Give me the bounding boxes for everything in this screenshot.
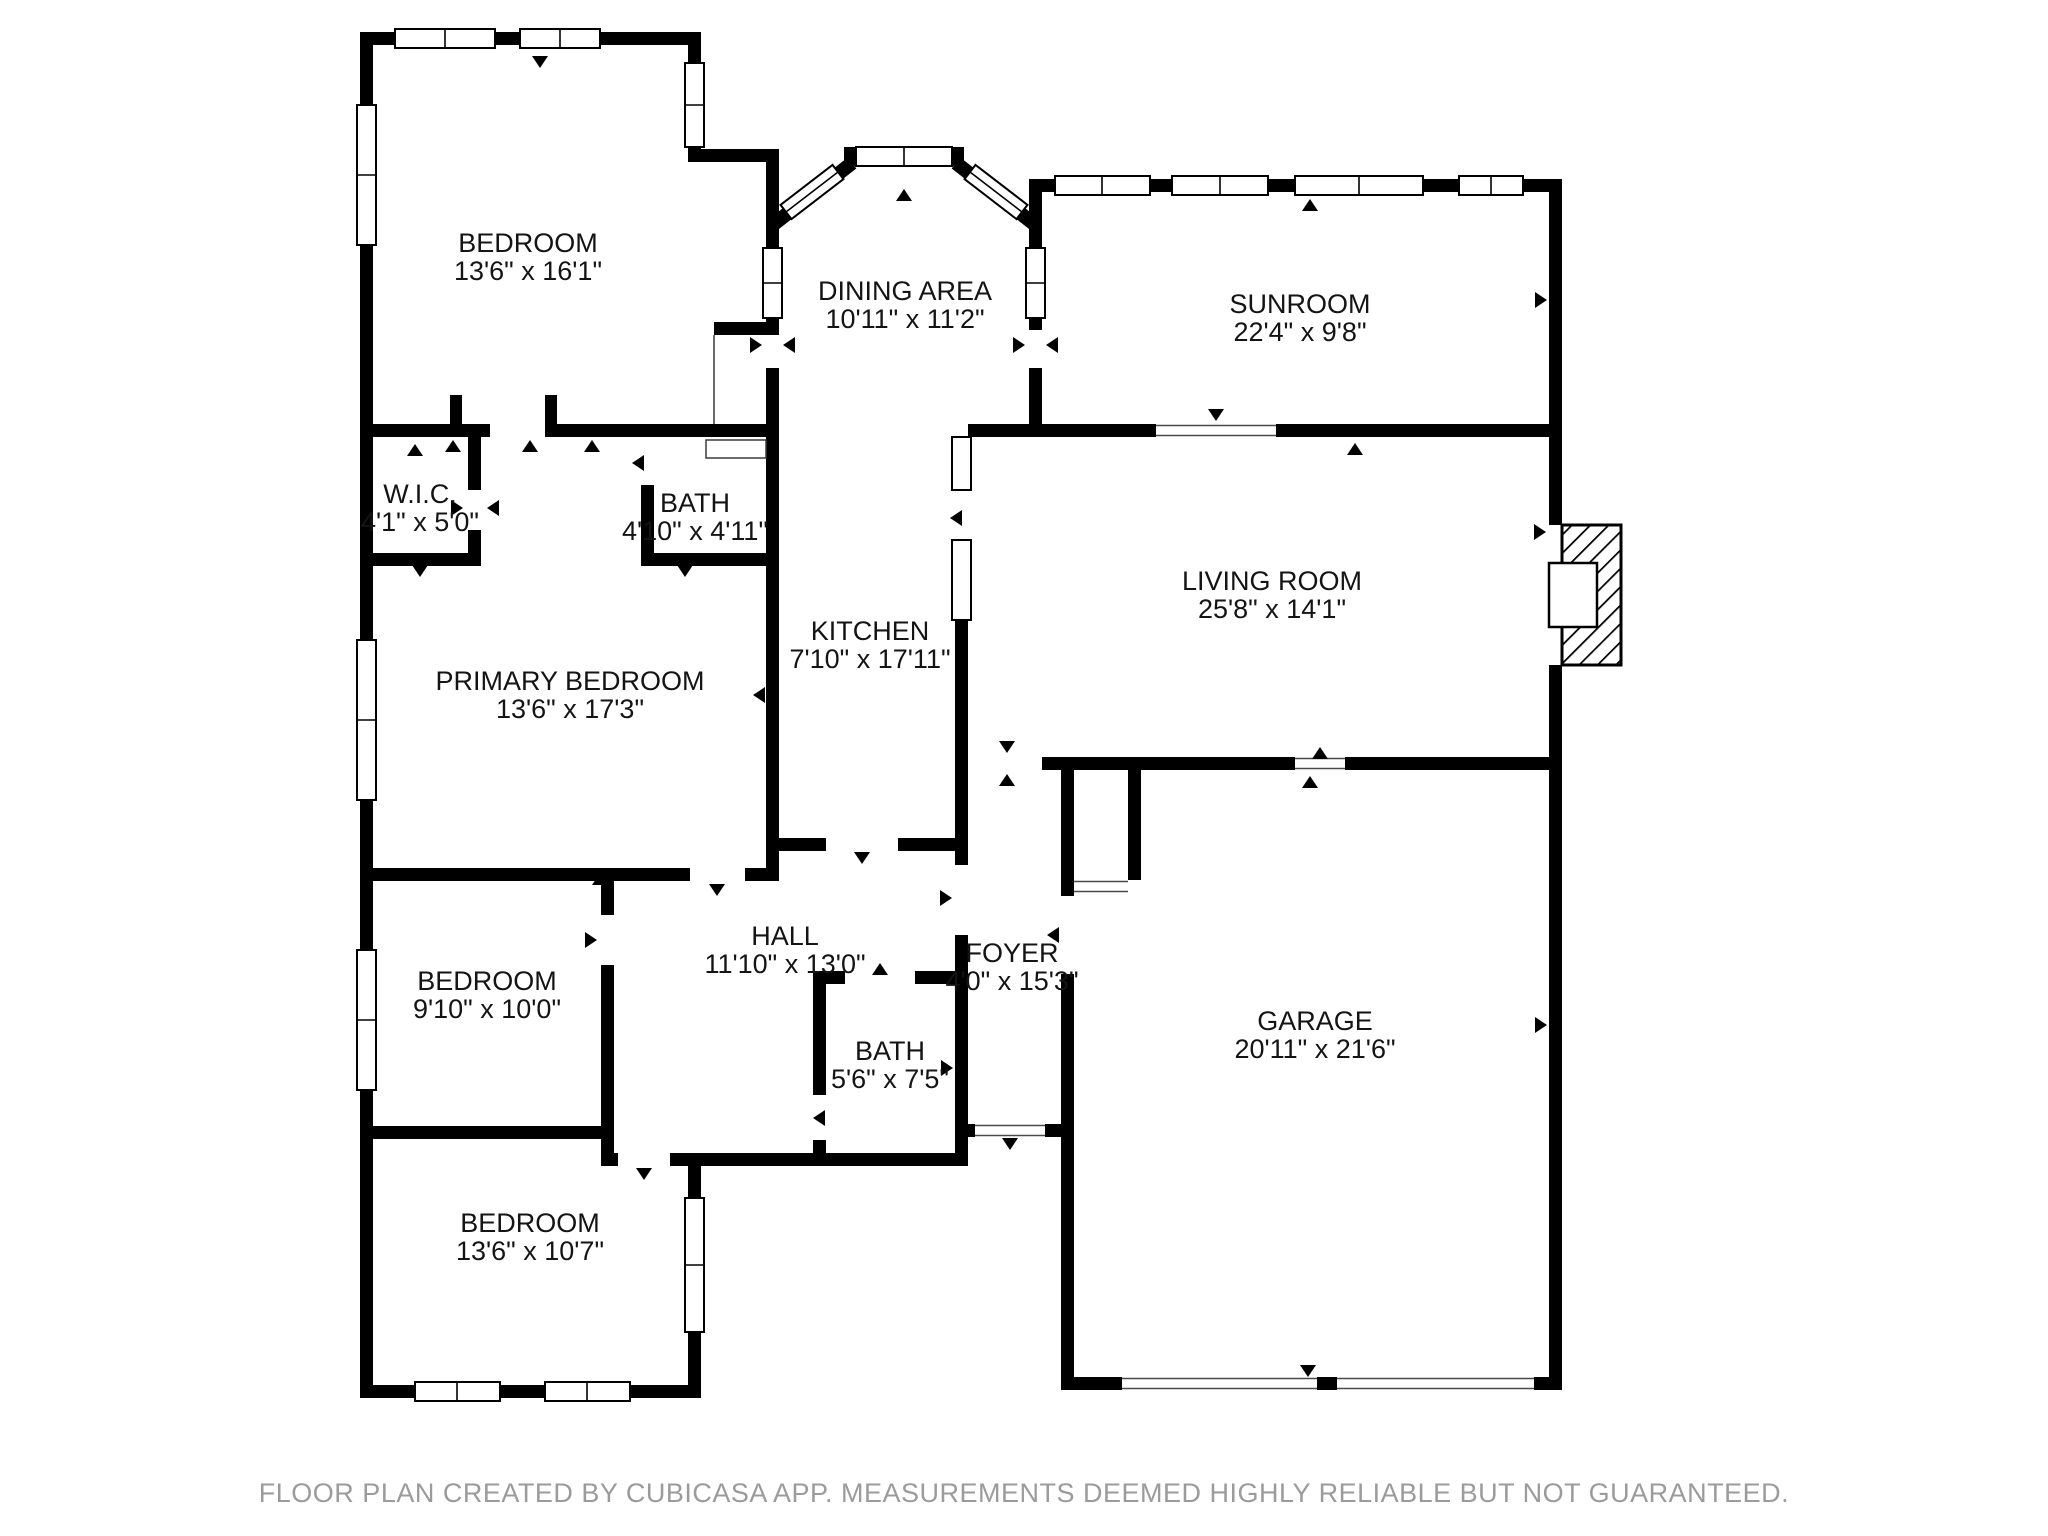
cased-opening (1156, 424, 1276, 437)
window (395, 29, 495, 48)
half-wall (952, 540, 971, 620)
window (545, 1382, 630, 1401)
room-dims-sunroom: 22'4" x 9'8" (1233, 317, 1366, 347)
floor-plan: BEDROOM13'6" x 16'1"DINING AREA10'11" x … (0, 0, 2048, 1536)
room-label-primary-bedroom: PRIMARY BEDROOM (435, 666, 704, 696)
room-dims-garage: 20'11" x 21'6" (1234, 1034, 1395, 1064)
fixtures (706, 335, 766, 458)
room-dims-bedroom-top: 13'6" x 16'1" (454, 256, 602, 286)
window (685, 1198, 704, 1332)
room-label-foyer: FOYER (965, 938, 1058, 968)
floor-plan-canvas: BEDROOM13'6" x 16'1"DINING AREA10'11" x … (0, 0, 2048, 1536)
room-label-hall: HALL (751, 921, 819, 951)
room-label-wic: W.I.C. (383, 479, 457, 509)
garage-door-left (1122, 1377, 1317, 1390)
window (1295, 176, 1423, 195)
vanity-cabinet (706, 440, 766, 458)
room-label-bath-lower: BATH (855, 1036, 925, 1066)
room-label-kitchen: KITCHEN (811, 616, 930, 646)
room-dims-dining-area: 10'11" x 11'2" (825, 304, 984, 334)
room-dims-wic: 4'1" x 5'0" (361, 507, 479, 537)
room-label-garage: GARAGE (1257, 1006, 1373, 1036)
room-dims-bedroom-middle: 9'10" x 10'0" (413, 994, 561, 1024)
room-dims-foyer: 4'0" x 15'3" (945, 966, 1078, 996)
window (763, 248, 782, 318)
fireplace (1549, 525, 1621, 665)
room-dims-bedroom-bottom: 13'6" x 10'7" (456, 1236, 604, 1266)
front-door-opening (975, 1124, 1045, 1137)
window (685, 63, 704, 147)
window (1026, 248, 1045, 318)
window (1172, 176, 1268, 195)
garage-door-right (1337, 1377, 1534, 1390)
half-wall (952, 437, 971, 490)
room-label-sunroom: SUNROOM (1230, 289, 1371, 319)
window (357, 950, 376, 1090)
footer-disclaimer: FLOOR PLAN CREATED BY CUBICASA APP. MEAS… (0, 1478, 2048, 1509)
room-dims-primary-bedroom: 13'6" x 17'3" (496, 694, 644, 724)
room-label-bath-upper: BATH (660, 488, 730, 518)
bay-window (781, 147, 1028, 219)
window (1459, 176, 1523, 195)
alcove-opening (1074, 880, 1128, 893)
room-label-bedroom-top: BEDROOM (458, 228, 598, 258)
room-label-dining-area: DINING AREA (818, 276, 992, 306)
room-labels: BEDROOM13'6" x 16'1"DINING AREA10'11" x … (361, 228, 1396, 1266)
room-label-bedroom-middle: BEDROOM (417, 966, 557, 996)
room-dims-kitchen: 7'10" x 17'11" (789, 644, 950, 674)
window (357, 105, 376, 245)
window (520, 29, 600, 48)
room-label-living-room: LIVING ROOM (1182, 566, 1362, 596)
room-label-bedroom-bottom: BEDROOM (460, 1208, 600, 1238)
window (357, 640, 376, 800)
firebox (1549, 563, 1597, 627)
room-dims-bath-upper: 4'10" x 4'11" (622, 516, 768, 546)
room-dims-hall: 11'10" x 13'0" (704, 949, 865, 979)
room-dims-bath-lower: 5'6" x 7'5" (831, 1064, 949, 1094)
room-dims-living-room: 25'8" x 14'1" (1198, 594, 1346, 624)
window (1055, 176, 1150, 195)
window (415, 1382, 500, 1401)
